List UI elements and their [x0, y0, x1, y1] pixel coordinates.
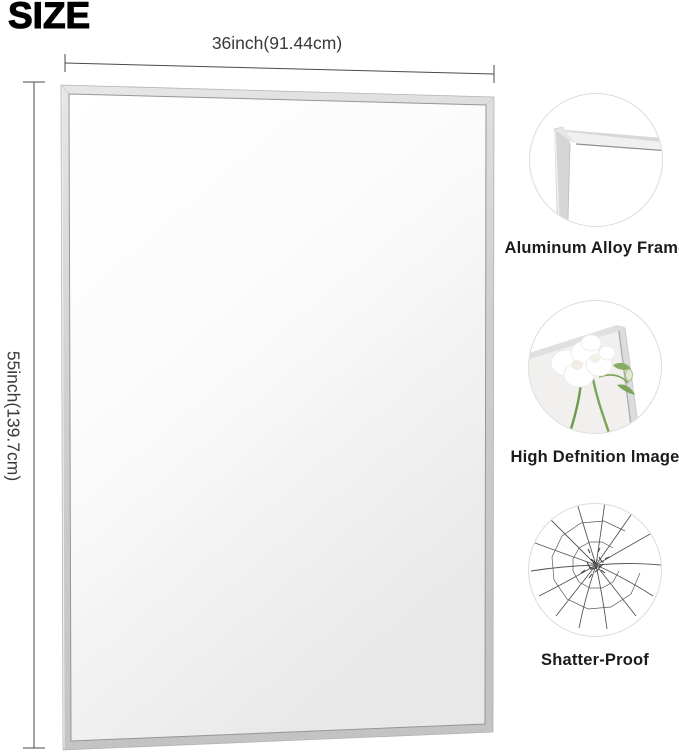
feature-label-aluminum-frame: Aluminum Alloy Frame — [504, 239, 679, 258]
height-dimension-label: 55inch(139.7cm) — [3, 351, 24, 481]
page-title: SIZE — [8, 0, 90, 36]
feature-circle-aluminum-frame — [529, 93, 663, 227]
width-dimension-line — [65, 54, 494, 83]
height-dimension-line — [23, 82, 45, 748]
shattered-glass-icon — [529, 504, 662, 637]
feature-circle-hd-image — [528, 300, 662, 434]
width-dimension-label: 36inch(91.44cm) — [212, 33, 342, 54]
mirror-face — [69, 94, 486, 741]
flower-mirror-icon — [529, 301, 662, 434]
product-size-diagram: SIZE 36inch(91.44cm) 55inch(139.7cm) Alu… — [0, 0, 679, 752]
feature-circle-shatter-proof — [528, 503, 662, 637]
feature-label-hd-image: High Defnition lmage — [511, 448, 679, 467]
feature-label-shatter-proof: Shatter-Proof — [541, 651, 649, 670]
frame-corner-icon — [530, 94, 663, 227]
